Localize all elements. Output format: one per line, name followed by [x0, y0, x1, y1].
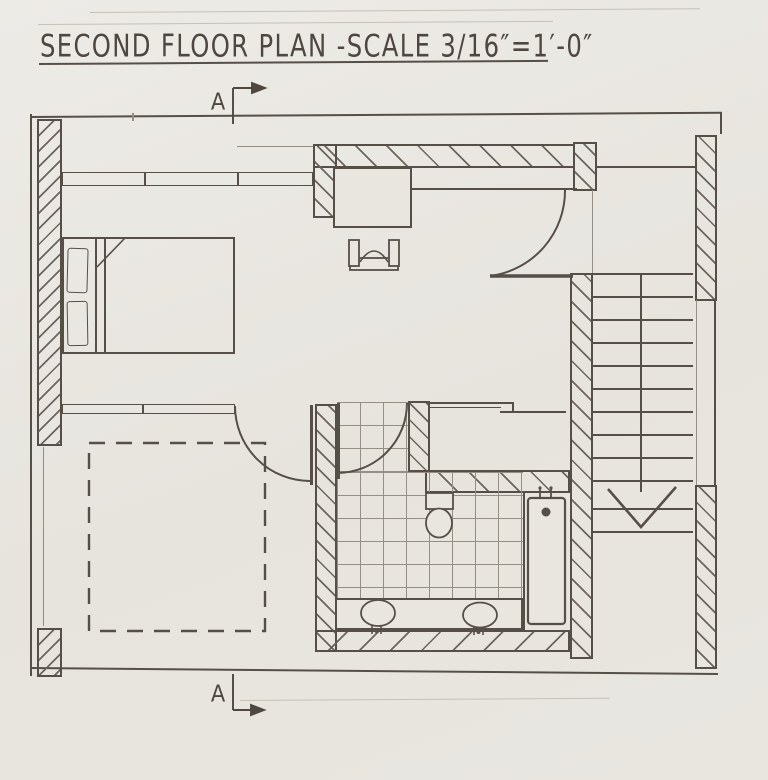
sink-right: [463, 603, 497, 628]
bathroom-door-arc: [337, 403, 407, 473]
bed-fold-line: [97, 238, 125, 267]
hall-door-arc: [490, 190, 565, 276]
toilet-bowl: [426, 509, 452, 538]
plan-details-layer: [0, 0, 768, 780]
tub-faucet-dot: [538, 486, 541, 489]
open-to-below-dashed: [89, 443, 265, 631]
bathtub: [528, 498, 565, 624]
faucet-spout: [477, 630, 481, 634]
section-label-top: A: [206, 89, 230, 115]
floor-plan-sheet: SECOND FLOOR PLAN -SCALE 3/16″=1′-0″: [0, 0, 768, 780]
toilet-tank: [426, 493, 453, 509]
faucet-spout: [375, 629, 379, 633]
tub-faucet-dot: [549, 486, 552, 489]
tub-drain: [542, 508, 551, 517]
chair-arm: [389, 240, 399, 266]
chair-arm: [349, 240, 359, 266]
section-marker-bottom: [233, 674, 264, 715]
stair-down-arrow: [608, 487, 676, 527]
section-label-bottom: A: [206, 681, 230, 707]
sink-left: [361, 600, 395, 626]
bedroom-door-arc: [235, 406, 310, 481]
section-marker-top: [233, 83, 265, 124]
